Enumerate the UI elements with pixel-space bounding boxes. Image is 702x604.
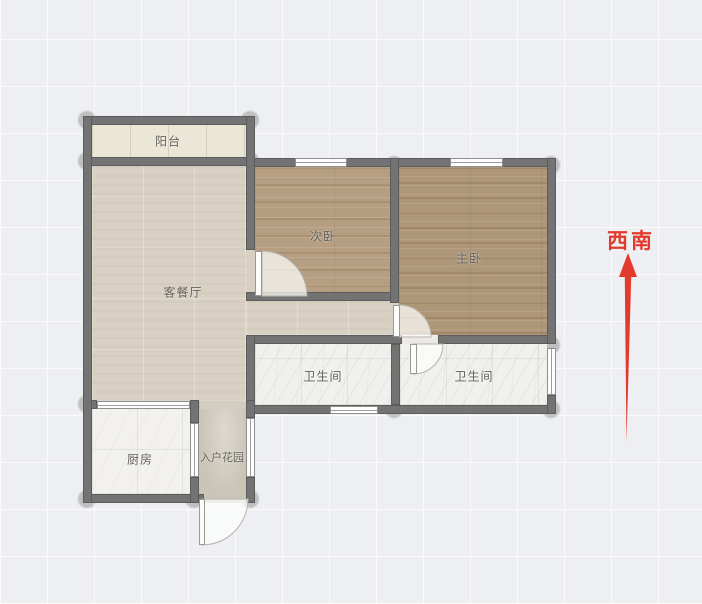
wall-segment: [246, 158, 556, 167]
floorplan-canvas[interactable]: 阳台 客餐厅 次卧 主卧 卫生间 卫生间 厨房 入户花园 西南: [0, 0, 702, 604]
room-label-balcony: 阳台: [155, 133, 181, 150]
door-leaf: [410, 344, 417, 374]
door-threshold: [200, 401, 246, 409]
wall-segment: [190, 477, 199, 503]
wall-segment: [246, 400, 255, 418]
room-label-entry-garden: 入户花园: [200, 449, 244, 465]
wall-segment: [246, 335, 402, 344]
wall-segment: [246, 477, 255, 503]
room-label-bathroom-1: 卫生间: [303, 368, 342, 385]
wall-segment: [391, 344, 400, 405]
wall-segment: [246, 116, 255, 250]
kitchen-pass-opening: [97, 401, 190, 409]
wall-segment: [547, 158, 556, 344]
wall-segment: [547, 395, 556, 414]
room-label-living: 客餐厅: [163, 284, 202, 301]
room-label-master-bedroom: 主卧: [456, 250, 482, 267]
window: [547, 348, 556, 395]
window: [450, 158, 503, 167]
window: [246, 418, 255, 477]
door-swing-arc: [202, 499, 248, 545]
room-living-corridor: [246, 301, 399, 335]
compass-direction-label: 西南: [607, 225, 655, 255]
entry-door-leaf: [199, 499, 205, 545]
wall-segment: [246, 292, 399, 301]
door-leaf: [255, 251, 262, 296]
wall-segment: [83, 157, 255, 166]
wall-segment: [83, 116, 92, 503]
door-threshold: [402, 336, 438, 344]
window: [330, 406, 378, 414]
window: [190, 423, 199, 477]
door-leaf: [393, 305, 400, 337]
wall-segment: [83, 494, 204, 503]
door-threshold: [204, 495, 246, 503]
room-label-kitchen: 厨房: [127, 451, 153, 468]
room-label-bathroom-2: 卫生间: [454, 368, 493, 385]
compass-arrow-icon: [619, 253, 637, 442]
wall-segment: [190, 400, 199, 423]
wall-segment: [438, 335, 556, 344]
wall-segment: [83, 116, 255, 125]
wall-segment: [390, 158, 399, 303]
room-label-second-bedroom: 次卧: [310, 228, 336, 245]
door-threshold: [246, 250, 255, 292]
wall-segment: [246, 405, 556, 414]
window: [295, 158, 347, 167]
